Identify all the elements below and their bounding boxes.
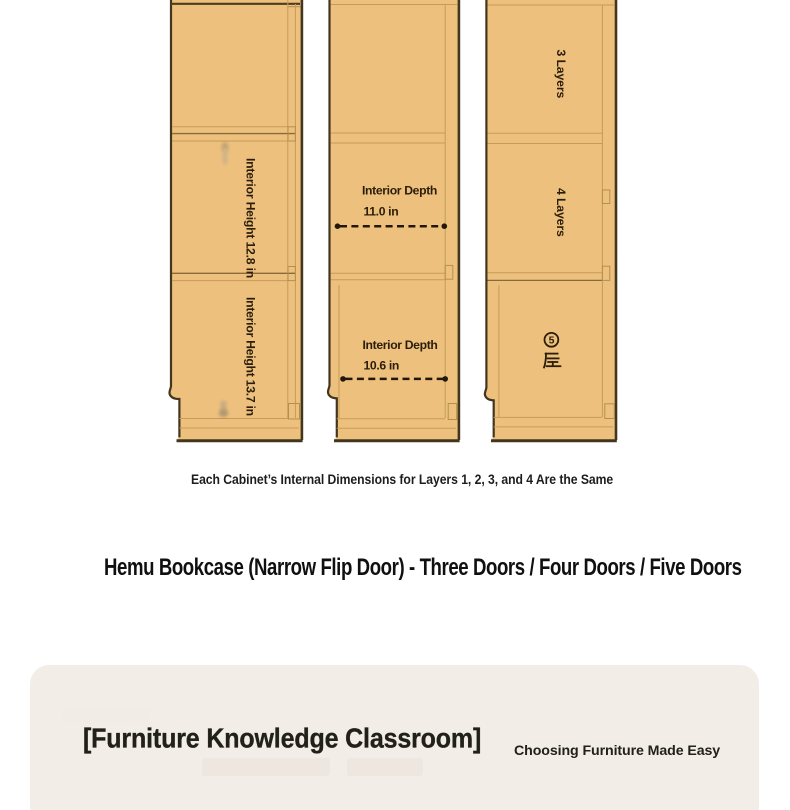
svg-text:Interior Depth: Interior Depth bbox=[363, 338, 438, 352]
svg-text:5: 5 bbox=[549, 335, 555, 347]
svg-text:4 Layers: 4 Layers bbox=[554, 188, 568, 237]
svg-text:11.0 in: 11.0 in bbox=[364, 204, 399, 218]
svg-text:10.6 in: 10.6 in bbox=[364, 359, 400, 373]
svg-text:Interior Depth: Interior Depth bbox=[362, 184, 437, 198]
svg-text:Interior Height 13.7 in: Interior Height 13.7 in bbox=[244, 297, 258, 416]
svg-text:Interior Height 12.8 in: Interior Height 12.8 in bbox=[244, 158, 258, 278]
svg-text:3 Layers: 3 Layers bbox=[554, 50, 568, 99]
